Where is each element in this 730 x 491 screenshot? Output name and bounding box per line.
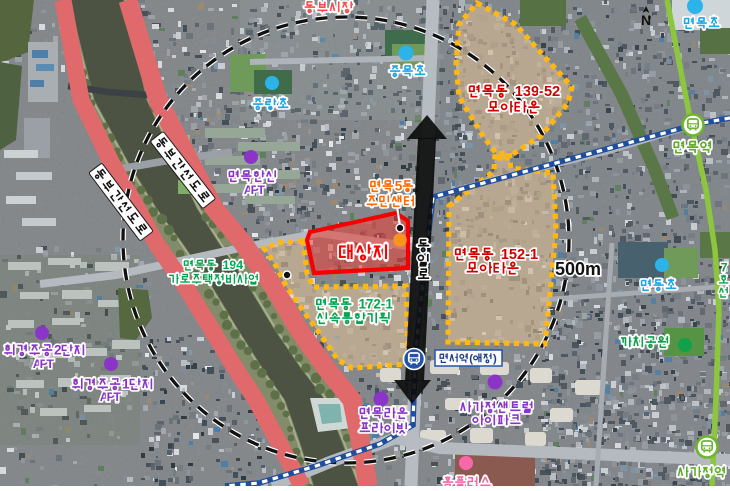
svg-text:4: 4 [236,258,243,272]
svg-text:(: ( [469,353,473,365]
svg-text:T: T [113,390,121,404]
svg-text:5: 5 [395,179,403,194]
svg-text:1: 1 [385,297,393,312]
svg-text:500m: 500m [555,259,601,279]
svg-text:T: T [46,357,54,371]
svg-text:2: 2 [552,84,560,100]
svg-text:7: 7 [366,297,374,312]
svg-text:2: 2 [517,247,525,263]
svg-text:): ) [493,353,497,365]
svg-text:1: 1 [515,84,523,100]
svg-text:5: 5 [544,84,552,100]
svg-text:1: 1 [122,377,130,392]
svg-text:3: 3 [523,84,531,100]
svg-text:T: T [257,183,265,197]
svg-text:9: 9 [531,84,539,100]
svg-text:7: 7 [721,261,728,275]
svg-text:N: N [641,12,651,28]
svg-text:2: 2 [54,343,62,358]
svg-text:1: 1 [530,247,538,263]
